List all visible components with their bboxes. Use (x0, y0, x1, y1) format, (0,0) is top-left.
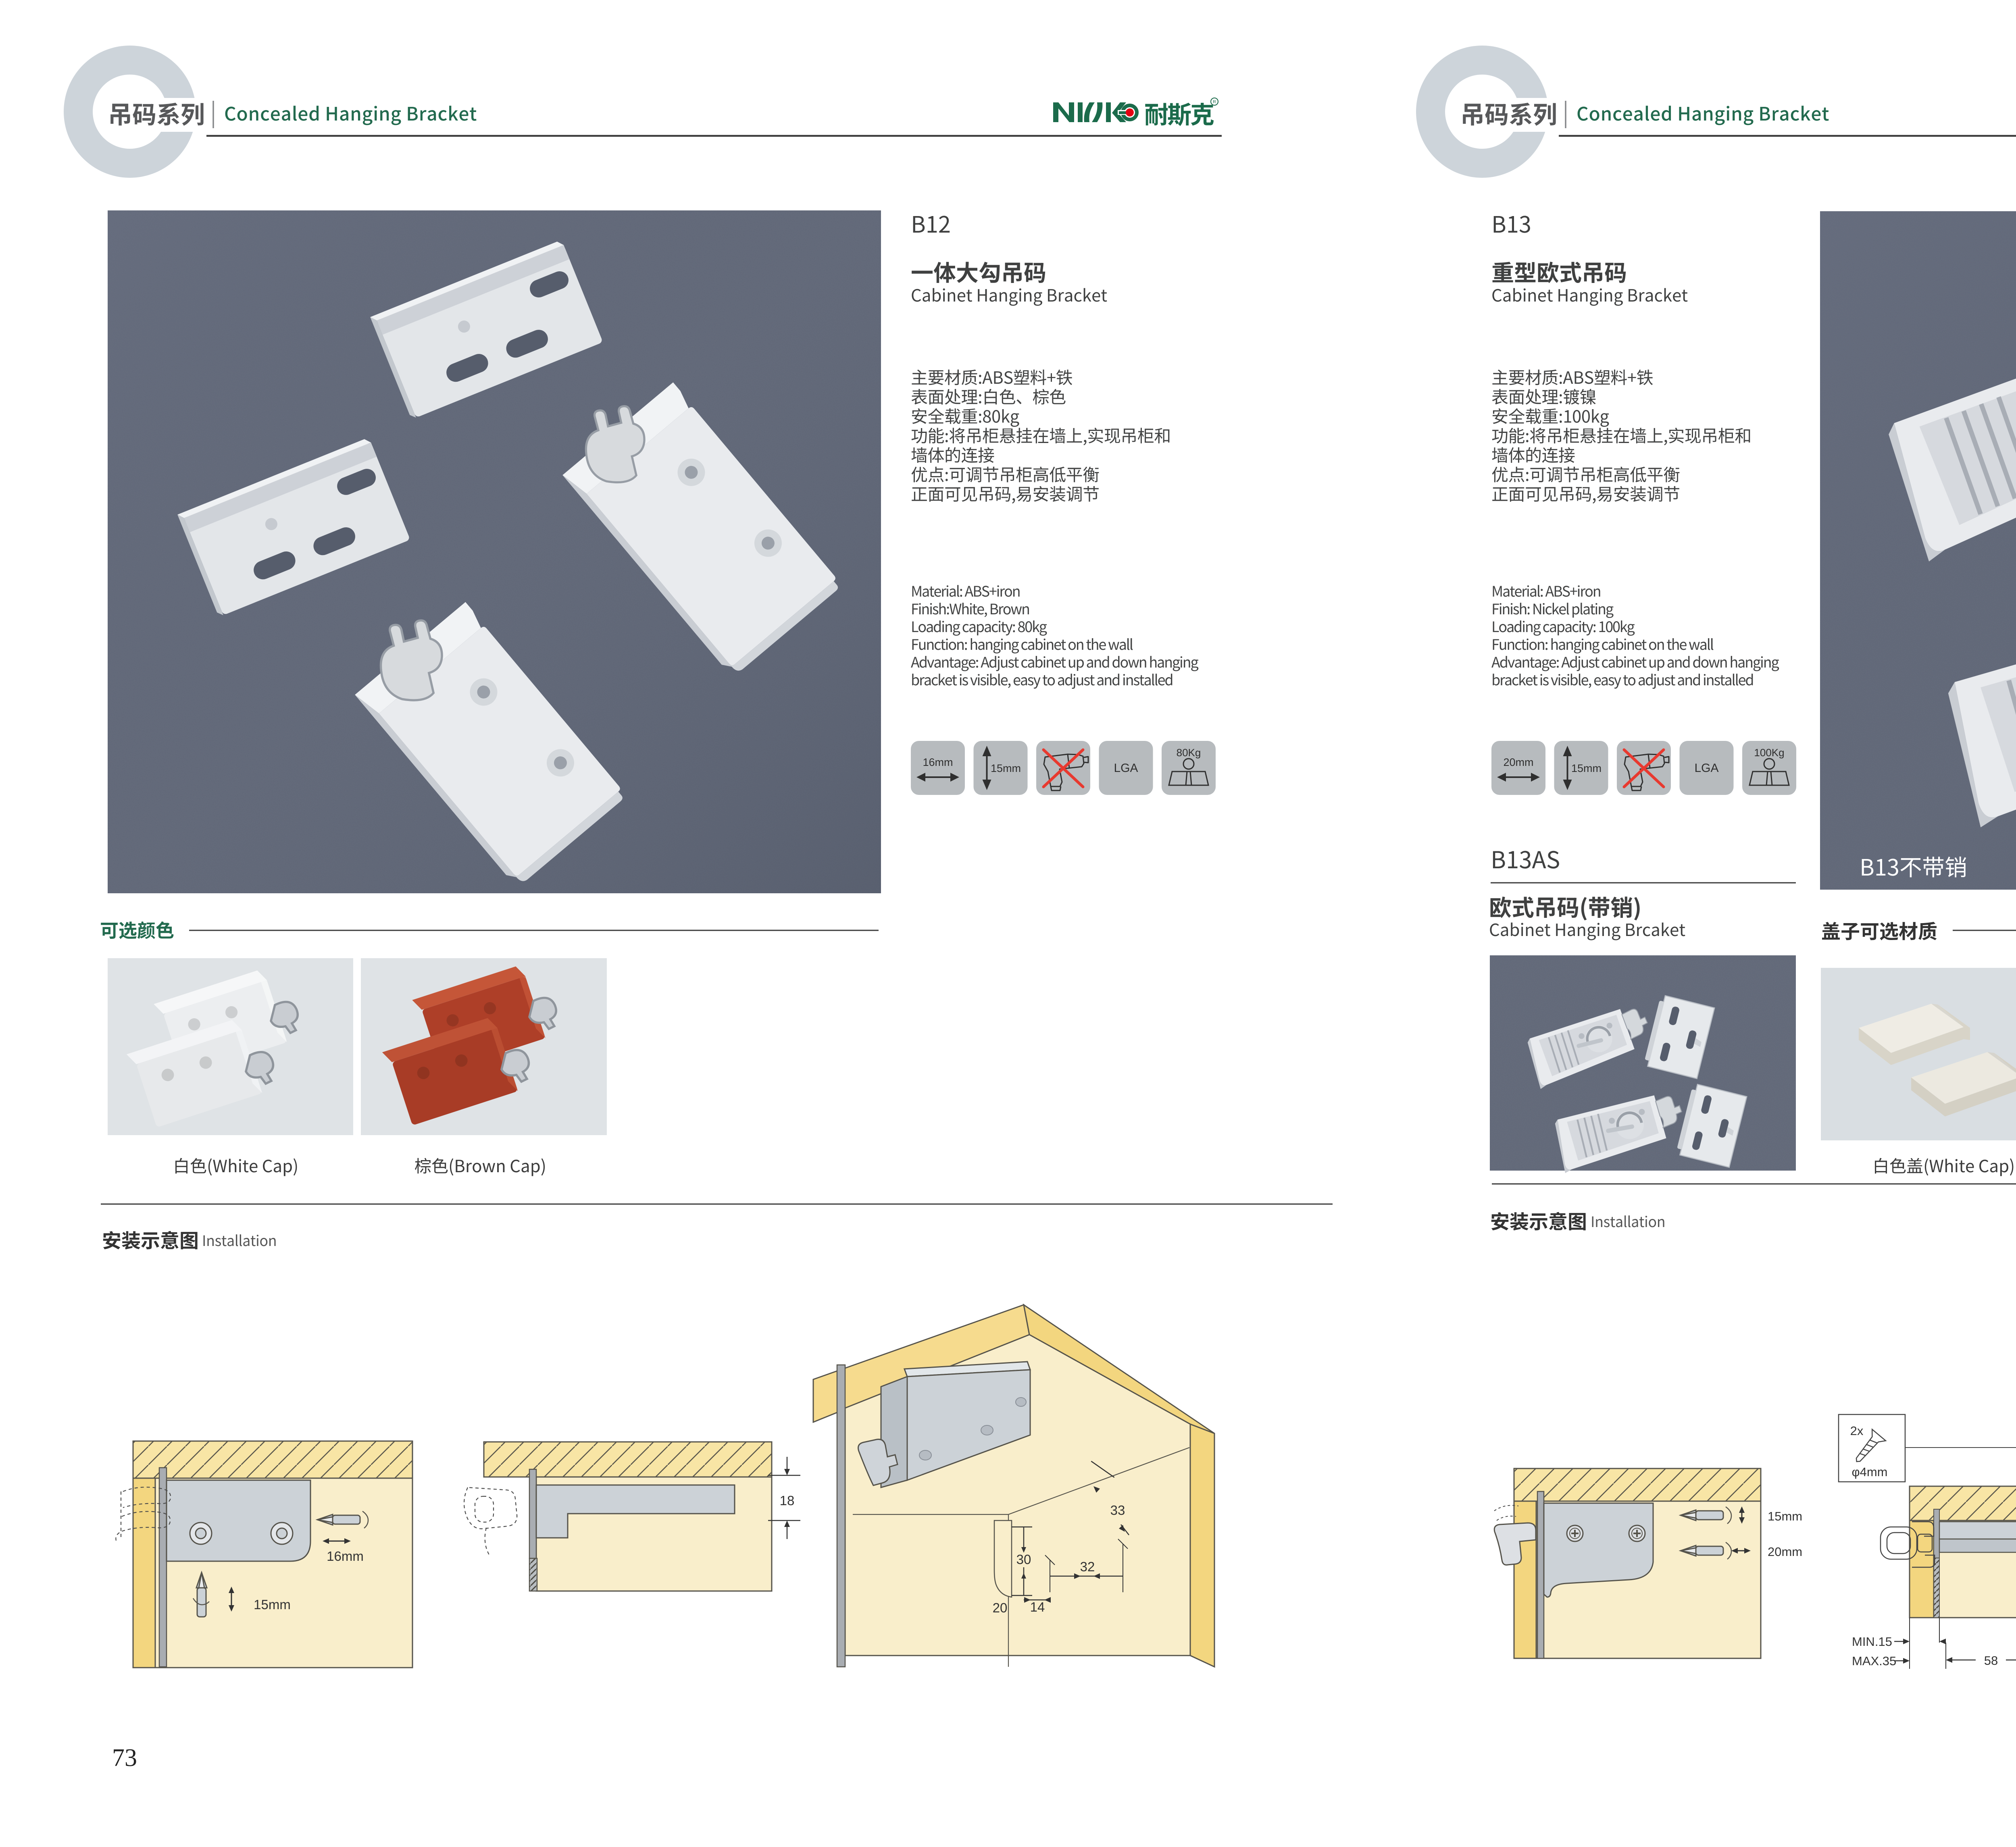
svg-text:LGA: LGA (1114, 761, 1138, 775)
svg-text:32: 32 (1080, 1559, 1095, 1574)
svg-text:58: 58 (1984, 1654, 1998, 1668)
svg-text:73: 73 (112, 1744, 137, 1772)
svg-text:2x: 2x (1850, 1424, 1864, 1438)
svg-text:100Kg: 100Kg (1754, 747, 1784, 759)
svg-text:15mm: 15mm (991, 762, 1021, 774)
svg-text:20mm: 20mm (1503, 756, 1533, 768)
svg-text:LGA: LGA (1694, 761, 1718, 775)
svg-text:15mm: 15mm (254, 1597, 291, 1612)
svg-text:MAX.35: MAX.35 (1852, 1654, 1896, 1668)
svg-text:MIN.15: MIN.15 (1852, 1635, 1892, 1649)
svg-text:18: 18 (780, 1493, 795, 1508)
svg-text:15mm: 15mm (1571, 762, 1602, 774)
svg-text:20mm: 20mm (1768, 1545, 1802, 1559)
svg-text:16mm: 16mm (923, 756, 953, 768)
svg-text:R: R (1213, 100, 1216, 104)
svg-text:16mm: 16mm (327, 1549, 364, 1564)
svg-text:20: 20 (993, 1600, 1008, 1615)
svg-text:15mm: 15mm (1768, 1509, 1802, 1523)
svg-text:33: 33 (1110, 1503, 1125, 1518)
svg-text:80Kg: 80Kg (1177, 747, 1201, 759)
svg-text:φ4mm: φ4mm (1852, 1465, 1888, 1479)
svg-text:14: 14 (1030, 1599, 1045, 1614)
svg-text:30: 30 (1016, 1552, 1031, 1567)
